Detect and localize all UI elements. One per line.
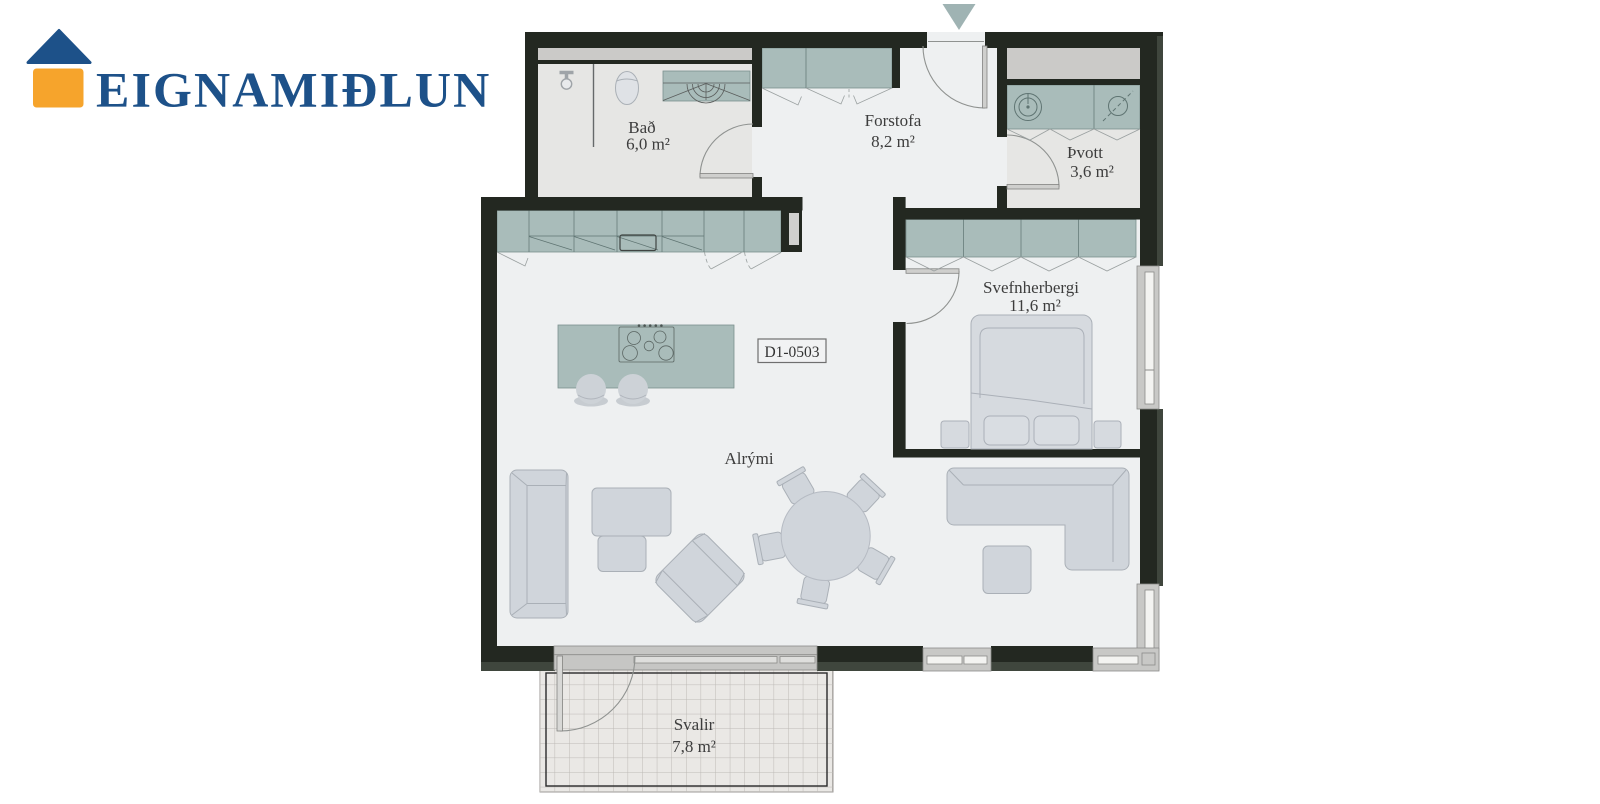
svg-text:D1-0503: D1-0503 [764, 344, 819, 361]
svg-text:8,2 m²: 8,2 m² [871, 132, 915, 151]
svg-text:6,0 m²: 6,0 m² [626, 135, 670, 154]
svg-text:11,6 m²: 11,6 m² [1009, 296, 1061, 315]
svg-text:Forstofa: Forstofa [865, 111, 922, 130]
svg-text:Svefnherbergi: Svefnherbergi [983, 278, 1079, 297]
svg-text:3,6 m²: 3,6 m² [1070, 162, 1114, 181]
svg-text:Svalir: Svalir [674, 715, 715, 734]
svg-text:Þvott: Þvott [1067, 143, 1103, 162]
svg-text:7,8 m²: 7,8 m² [672, 737, 716, 756]
svg-text:EIGNAMIÐLUN: EIGNAMIÐLUN [96, 62, 491, 118]
svg-text:Alrými: Alrými [724, 449, 773, 468]
